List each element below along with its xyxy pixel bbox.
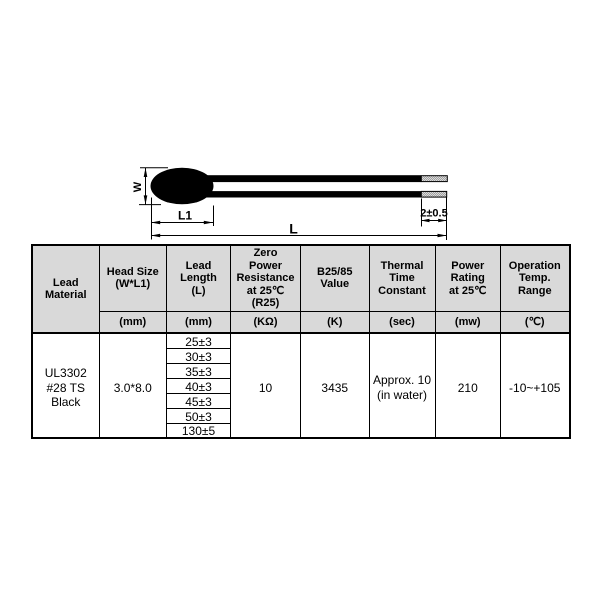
- svg-text:W: W: [132, 181, 144, 192]
- svg-text:L: L: [289, 221, 298, 237]
- svg-text:L1: L1: [178, 208, 192, 222]
- svg-text:2±0.5: 2±0.5: [420, 208, 447, 220]
